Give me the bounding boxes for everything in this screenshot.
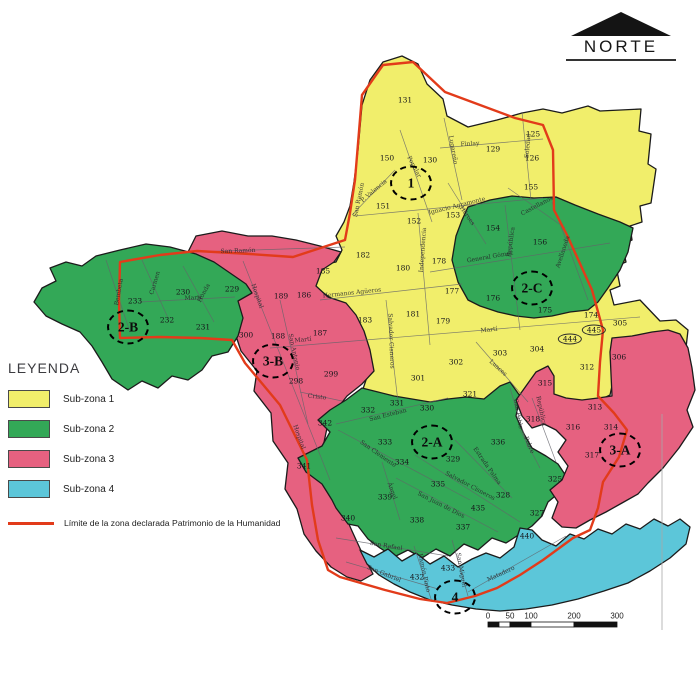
heritage-line-label: Límite de la zona declarada Patrimonio d… bbox=[64, 518, 280, 528]
compass-label: NORTE bbox=[566, 37, 676, 61]
legend-item: Sub-zona 1 bbox=[8, 390, 348, 408]
heritage-line-swatch bbox=[8, 522, 54, 525]
legend-item-label: Sub-zona 4 bbox=[63, 484, 114, 495]
north-arrow-icon bbox=[571, 12, 671, 36]
legend-item: Sub-zona 4 bbox=[8, 480, 348, 498]
legend-swatch bbox=[8, 390, 50, 408]
legend-items: Sub-zona 1Sub-zona 2Sub-zona 3Sub-zona 4 bbox=[8, 390, 348, 498]
legend-item: Sub-zona 3 bbox=[8, 450, 348, 468]
legend-swatch bbox=[8, 420, 50, 438]
map-page: 1311501301291251261551511521531541561761… bbox=[0, 0, 698, 675]
legend-title: LEYENDA bbox=[8, 360, 348, 376]
legend-swatch bbox=[8, 450, 50, 468]
city-zoning-map bbox=[0, 0, 698, 675]
legend-item-label: Sub-zona 2 bbox=[63, 424, 114, 435]
compass-north: NORTE bbox=[566, 12, 676, 61]
scale-bar bbox=[488, 622, 617, 627]
legend-swatch bbox=[8, 480, 50, 498]
legend-item: Sub-zona 2 bbox=[8, 420, 348, 438]
legend-boundary-item: Límite de la zona declarada Patrimonio d… bbox=[8, 518, 348, 528]
legend: LEYENDA Sub-zona 1Sub-zona 2Sub-zona 3Su… bbox=[8, 360, 348, 528]
legend-item-label: Sub-zona 3 bbox=[63, 454, 114, 465]
legend-item-label: Sub-zona 1 bbox=[63, 394, 114, 405]
